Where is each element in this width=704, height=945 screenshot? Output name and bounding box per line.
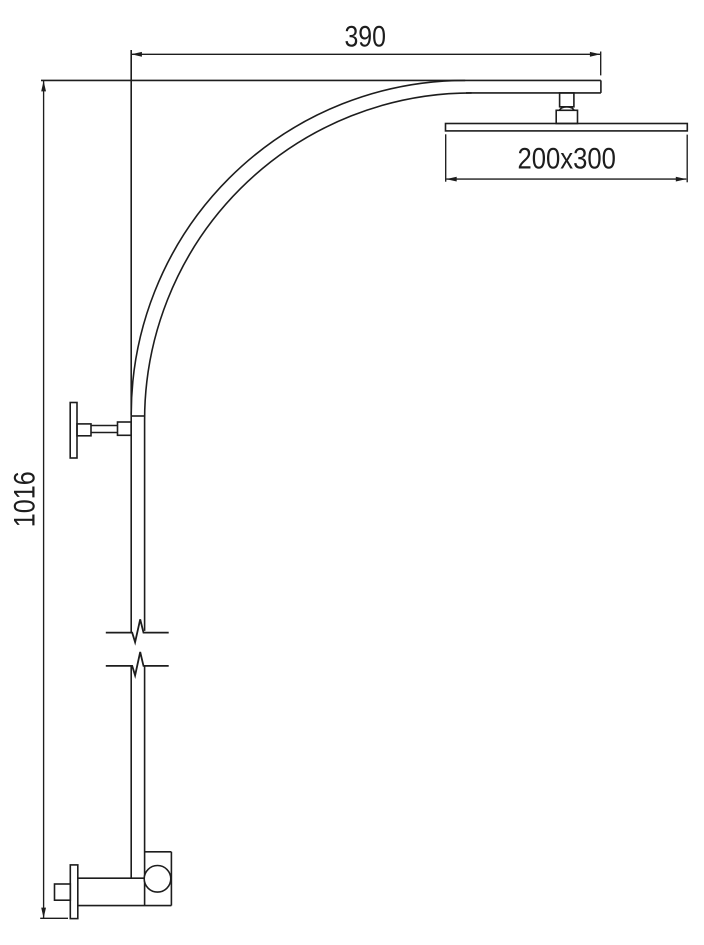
svg-text:390: 390 <box>344 20 386 53</box>
svg-text:200x300: 200x300 <box>518 142 616 175</box>
svg-text:1016: 1016 <box>8 471 41 527</box>
